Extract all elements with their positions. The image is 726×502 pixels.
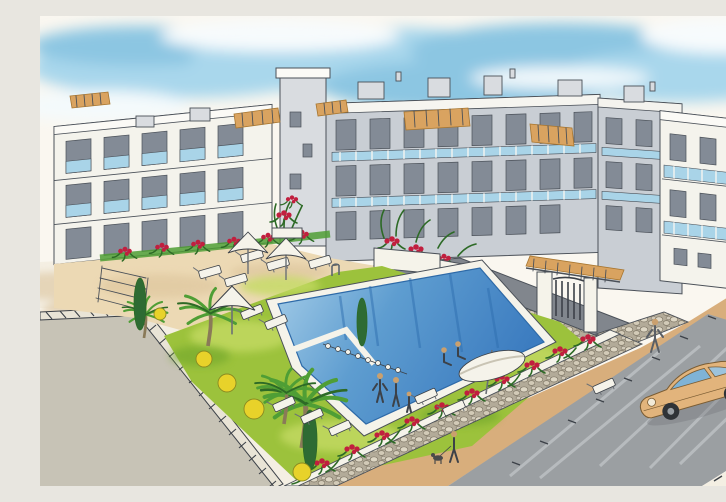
cypress-tree xyxy=(357,298,367,346)
yellow-shrub xyxy=(154,308,166,320)
yellow-shrub xyxy=(293,463,311,481)
yellow-shrub xyxy=(196,351,212,367)
yellow-shrub xyxy=(218,374,236,392)
cypress-tree xyxy=(134,278,146,330)
pergola-strip xyxy=(404,108,470,130)
illustration-canvas xyxy=(40,16,726,486)
corner-building xyxy=(660,111,726,293)
architectural-rendering xyxy=(40,16,726,486)
pergola-strip xyxy=(530,124,574,146)
yellow-shrub xyxy=(244,399,264,419)
